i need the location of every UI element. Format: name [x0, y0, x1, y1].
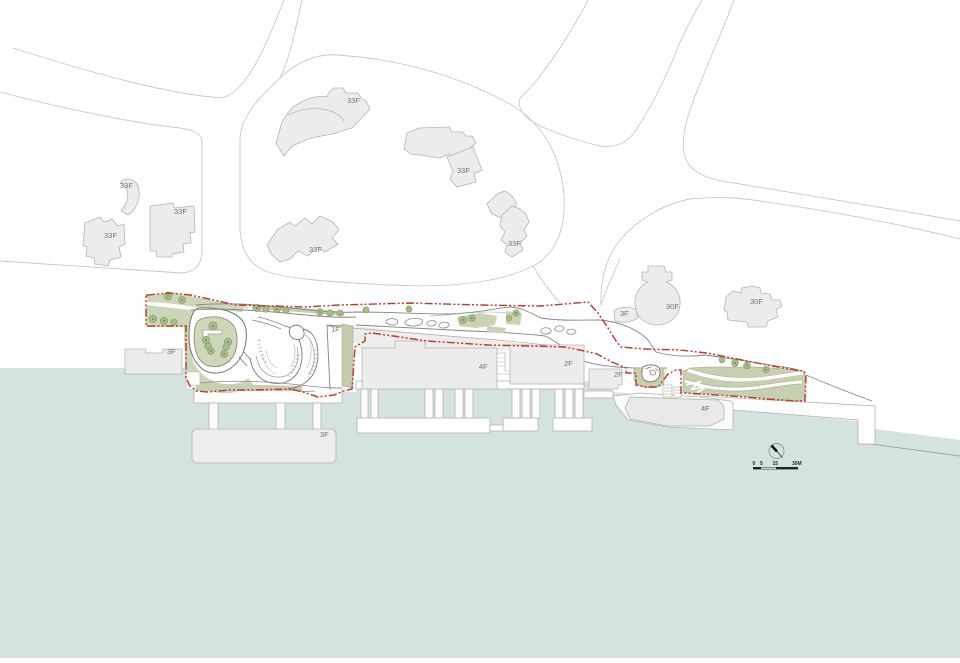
svg-text:33F: 33F	[309, 245, 322, 254]
svg-text:2F: 2F	[564, 359, 573, 368]
svg-text:33F: 33F	[174, 207, 187, 216]
svg-text:3F: 3F	[620, 309, 629, 318]
svg-text:2F: 2F	[614, 370, 623, 379]
svg-text:30F: 30F	[750, 297, 763, 306]
svg-text:15: 15	[773, 461, 779, 467]
svg-text:33F: 33F	[508, 239, 521, 248]
svg-text:33F: 33F	[347, 96, 360, 105]
svg-text:33F: 33F	[120, 181, 133, 190]
svg-text:4F: 4F	[701, 404, 710, 413]
svg-text:33F: 33F	[104, 231, 117, 240]
svg-text:1F: 1F	[331, 325, 340, 334]
svg-text:4F: 4F	[479, 362, 488, 371]
svg-text:5: 5	[760, 461, 763, 467]
svg-text:3F: 3F	[320, 430, 329, 439]
svg-text:30M: 30M	[792, 461, 802, 467]
svg-text:33F: 33F	[457, 166, 470, 175]
svg-text:30F: 30F	[666, 302, 679, 311]
svg-text:3F: 3F	[167, 347, 176, 356]
svg-text:0: 0	[753, 461, 756, 467]
